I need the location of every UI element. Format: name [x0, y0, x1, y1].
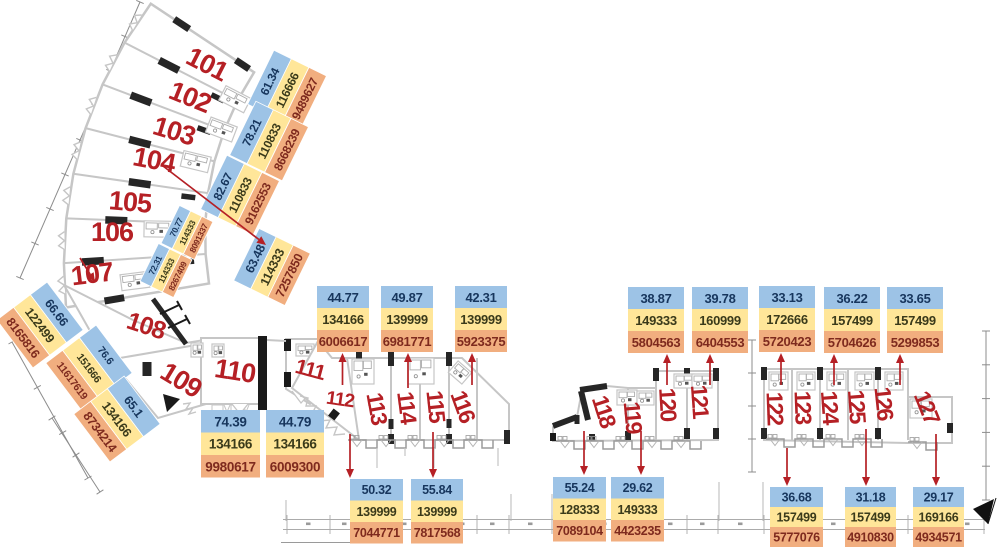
svg-text:38.87: 38.87 [640, 291, 671, 306]
svg-text:5299853: 5299853 [891, 335, 940, 350]
svg-text:5720423: 5720423 [763, 334, 812, 349]
svg-text:36.22: 36.22 [836, 291, 867, 306]
svg-text:31.18: 31.18 [856, 491, 886, 505]
svg-text:4934571: 4934571 [915, 531, 962, 545]
svg-text:33.65: 33.65 [899, 291, 930, 306]
svg-text:6981771: 6981771 [383, 334, 432, 349]
svg-text:114: 114 [392, 390, 422, 426]
svg-text:119: 119 [619, 400, 648, 434]
svg-text:149333: 149333 [618, 503, 658, 517]
svg-text:157499: 157499 [851, 511, 891, 525]
svg-text:44.77: 44.77 [327, 290, 358, 305]
svg-text:105: 105 [108, 185, 153, 219]
svg-text:33.13: 33.13 [771, 290, 802, 305]
svg-text:139999: 139999 [417, 505, 457, 519]
svg-text:4423235: 4423235 [614, 524, 661, 538]
svg-text:44.79: 44.79 [279, 414, 311, 429]
svg-text:55.84: 55.84 [422, 483, 452, 497]
svg-text:122: 122 [761, 391, 788, 425]
svg-text:157499: 157499 [777, 511, 817, 525]
svg-text:139999: 139999 [357, 505, 397, 519]
svg-text:39.78: 39.78 [704, 291, 735, 306]
svg-text:149333: 149333 [635, 313, 677, 328]
svg-text:5923375: 5923375 [457, 334, 506, 349]
svg-text:139999: 139999 [460, 312, 502, 327]
svg-text:42.31: 42.31 [465, 290, 496, 305]
svg-text:124: 124 [816, 390, 844, 426]
svg-text:123: 123 [789, 390, 816, 424]
svg-text:7044771: 7044771 [353, 526, 400, 540]
svg-text:160999: 160999 [699, 313, 741, 328]
svg-text:7817568: 7817568 [414, 526, 461, 540]
svg-text:125: 125 [843, 389, 871, 425]
svg-text:6006617: 6006617 [319, 334, 368, 349]
svg-text:121: 121 [686, 384, 714, 420]
svg-text:36.68: 36.68 [782, 491, 812, 505]
svg-text:128333: 128333 [560, 503, 600, 517]
svg-text:134166: 134166 [322, 312, 364, 327]
svg-text:4910830: 4910830 [847, 531, 894, 545]
svg-text:169166: 169166 [919, 511, 959, 525]
svg-text:5704626: 5704626 [828, 335, 877, 350]
svg-text:50.32: 50.32 [362, 483, 392, 497]
svg-text:134166: 134166 [209, 437, 253, 452]
svg-text:157499: 157499 [894, 313, 936, 328]
svg-text:157499: 157499 [831, 313, 873, 328]
svg-text:106: 106 [91, 217, 134, 247]
svg-text:120: 120 [654, 387, 682, 422]
svg-text:139999: 139999 [386, 312, 428, 327]
svg-text:172666: 172666 [766, 312, 808, 327]
svg-text:7089104: 7089104 [556, 524, 603, 538]
svg-text:49.87: 49.87 [391, 290, 422, 305]
svg-text:126: 126 [869, 386, 898, 422]
svg-text:5777076: 5777076 [773, 531, 820, 545]
svg-text:74.39: 74.39 [214, 414, 246, 429]
svg-text:29.62: 29.62 [623, 481, 653, 495]
svg-text:29.17: 29.17 [924, 491, 954, 505]
svg-text:134166: 134166 [273, 437, 317, 452]
svg-text:6404553: 6404553 [696, 335, 745, 350]
svg-text:113: 113 [361, 390, 392, 426]
svg-text:112: 112 [325, 388, 356, 413]
svg-text:55.24: 55.24 [565, 481, 595, 495]
svg-text:9980617: 9980617 [205, 459, 255, 474]
svg-text:5804563: 5804563 [632, 335, 681, 350]
svg-text:6009300: 6009300 [270, 459, 320, 474]
svg-text:110: 110 [213, 353, 258, 389]
